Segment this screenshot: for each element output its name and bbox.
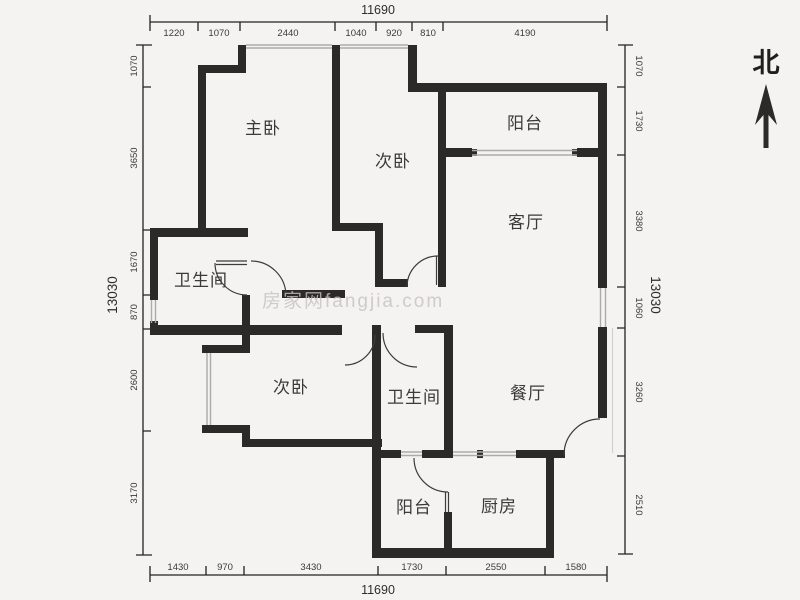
room-label-bedroom-top: 次卧 bbox=[375, 152, 411, 171]
dim-label: 1040 bbox=[345, 28, 366, 39]
dim-label: 3260 bbox=[633, 381, 644, 402]
dim-label: 2600 bbox=[129, 369, 140, 390]
dim-label: 870 bbox=[129, 304, 140, 320]
dim-label: 1580 bbox=[565, 562, 586, 573]
dim-label: 3170 bbox=[129, 482, 140, 503]
dim-label: 2510 bbox=[633, 494, 644, 515]
room-label-dining-room: 餐厅 bbox=[510, 384, 546, 403]
dim-label: 1220 bbox=[163, 28, 184, 39]
room-label-balcony-bottom: 阳台 bbox=[396, 498, 432, 517]
dim-total-right: 13030 bbox=[648, 276, 663, 314]
dim-label: 1070 bbox=[208, 28, 229, 39]
dim-label: 3380 bbox=[633, 210, 644, 231]
dim-total-left: 13030 bbox=[105, 276, 120, 314]
room-label-bathroom-top: 卫生间 bbox=[174, 271, 228, 290]
room-label-master-bedroom: 主卧 bbox=[245, 119, 281, 138]
dim-label: 2440 bbox=[277, 28, 298, 39]
dim-label: 2550 bbox=[485, 562, 506, 573]
dim-label: 3650 bbox=[129, 147, 140, 168]
watermark-text: 房家网fangjia.com bbox=[262, 290, 444, 312]
dim-total-bottom: 11690 bbox=[361, 583, 395, 597]
dim-label: 1670 bbox=[129, 251, 140, 272]
room-label-balcony-top: 阳台 bbox=[507, 114, 543, 133]
north-arrow-stem bbox=[764, 110, 769, 148]
dim-label: 1730 bbox=[401, 562, 422, 573]
room-label-bedroom-bottom: 次卧 bbox=[273, 378, 309, 397]
dim-label: 1070 bbox=[633, 55, 644, 76]
dim-label: 920 bbox=[386, 28, 402, 39]
dim-label: 4190 bbox=[514, 28, 535, 39]
room-label-bathroom-bottom: 卫生间 bbox=[387, 388, 441, 407]
dim-label: 1430 bbox=[167, 562, 188, 573]
dim-total-top: 11690 bbox=[361, 3, 395, 17]
floorplan-page: 11690 1220 1070 2440 1040 920 810 4190 1… bbox=[0, 0, 800, 600]
dim-label: 1070 bbox=[129, 55, 140, 76]
dim-label: 3430 bbox=[300, 562, 321, 573]
floorplan-canvas: 11690 1220 1070 2440 1040 920 810 4190 1… bbox=[0, 0, 800, 600]
dim-label: 1060 bbox=[633, 297, 644, 318]
north-label: 北 bbox=[753, 48, 780, 78]
dim-label: 970 bbox=[217, 562, 233, 573]
dim-label: 810 bbox=[420, 28, 436, 39]
room-label-living-room: 客厅 bbox=[508, 213, 544, 232]
room-label-kitchen: 厨房 bbox=[481, 497, 517, 516]
dim-label: 1730 bbox=[633, 110, 644, 131]
